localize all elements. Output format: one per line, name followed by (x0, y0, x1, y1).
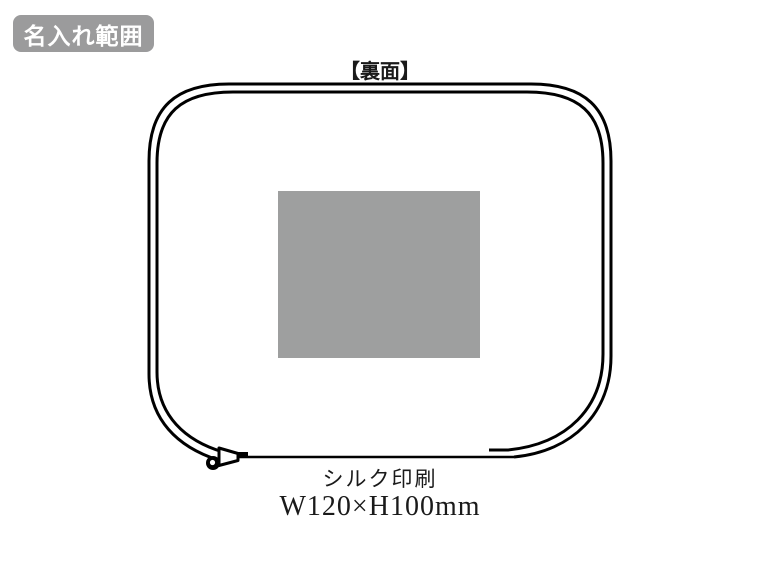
print-size-label: W120×H100mm (0, 491, 760, 523)
print-area-rect (278, 191, 480, 358)
zipper-slider-body (219, 448, 238, 466)
imprint-area-figure: 名入れ範囲 【裏面】 シルク印刷 W120×H100mm (0, 0, 760, 570)
print-spec-caption: シルク印刷 W120×H100mm (0, 467, 760, 523)
zipper-pull-ring-hole (210, 460, 215, 465)
print-method-label: シルク印刷 (0, 467, 760, 491)
